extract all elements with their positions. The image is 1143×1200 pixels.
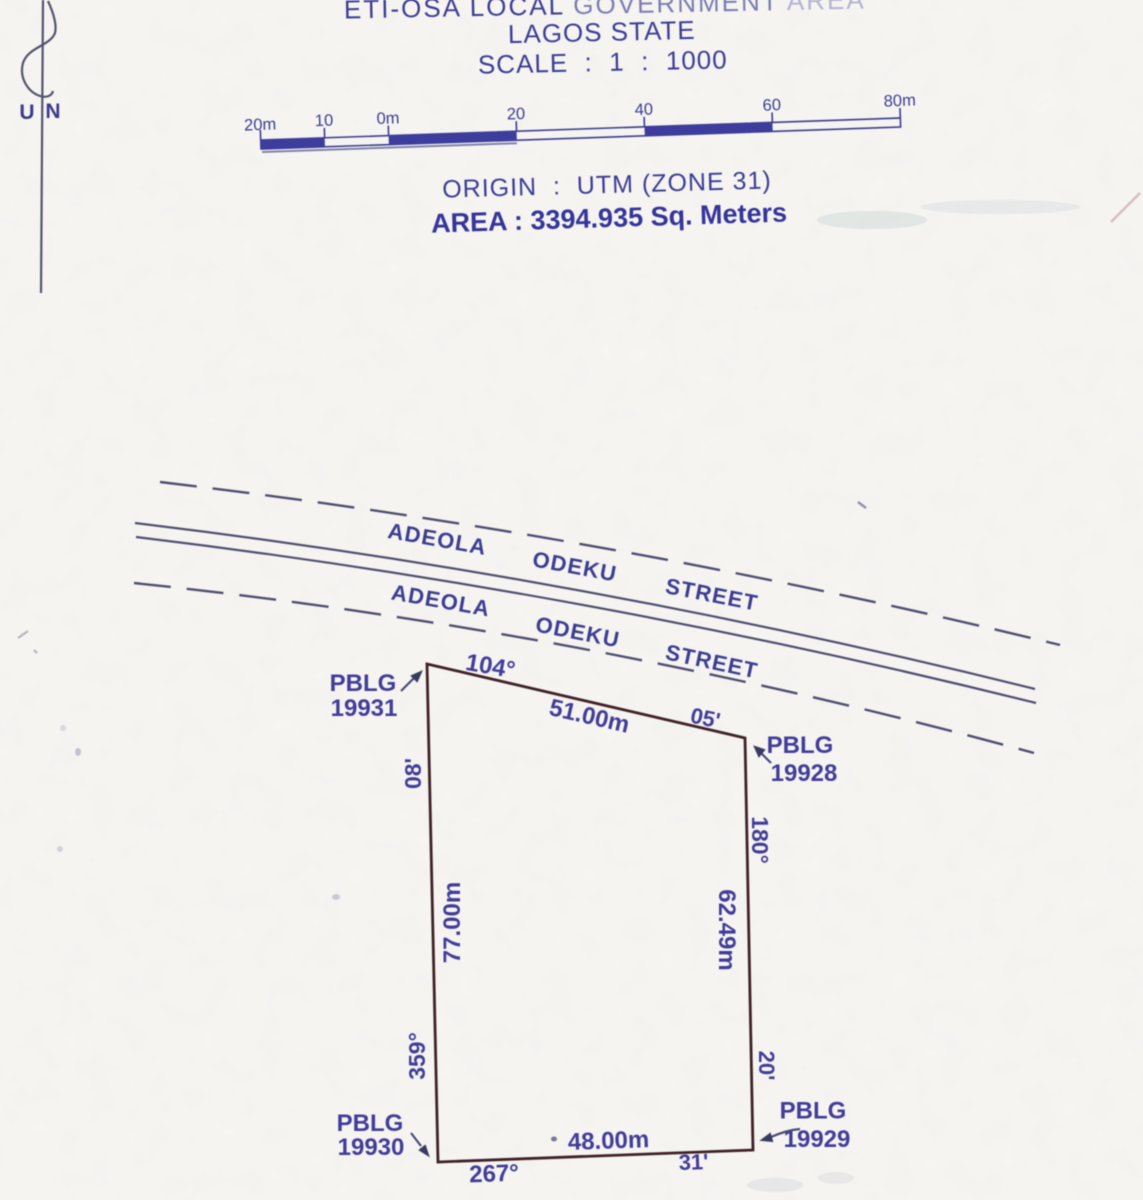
svg-text:PBLG: PBLG bbox=[330, 670, 397, 697]
svg-text:PBLG: PBLG bbox=[337, 1110, 404, 1137]
svg-text:19928: 19928 bbox=[771, 760, 838, 787]
svg-text:0m: 0m bbox=[376, 109, 400, 128]
svg-text:20: 20 bbox=[506, 105, 525, 124]
svg-text:U: U bbox=[19, 101, 34, 124]
svg-text:PBLG: PBLG bbox=[780, 1098, 847, 1125]
svg-text:40: 40 bbox=[634, 101, 653, 120]
svg-text:62.49m: 62.49m bbox=[713, 889, 740, 970]
svg-text:180°: 180° bbox=[747, 816, 773, 864]
svg-text:19930: 19930 bbox=[338, 1134, 405, 1161]
svg-text:PBLG: PBLG bbox=[767, 732, 834, 759]
svg-text:08': 08' bbox=[400, 758, 426, 789]
svg-text:SCALE : 1 : 1000: SCALE : 1 : 1000 bbox=[478, 44, 728, 79]
svg-text:80m: 80m bbox=[883, 91, 916, 110]
svg-text:60: 60 bbox=[762, 96, 781, 115]
svg-text:10: 10 bbox=[315, 112, 334, 131]
svg-text:267°: 267° bbox=[469, 1160, 520, 1189]
svg-text:19931: 19931 bbox=[331, 695, 398, 722]
svg-text:N: N bbox=[45, 100, 60, 123]
svg-text:48.00m: 48.00m bbox=[567, 1126, 649, 1156]
svg-text:359°: 359° bbox=[404, 1032, 430, 1080]
svg-text:20': 20' bbox=[754, 1051, 779, 1081]
svg-text:LAGOS STATE: LAGOS STATE bbox=[508, 15, 696, 49]
svg-text:20m: 20m bbox=[244, 115, 277, 134]
svg-text:77.00m: 77.00m bbox=[439, 882, 466, 963]
svg-text:31': 31' bbox=[678, 1149, 709, 1175]
